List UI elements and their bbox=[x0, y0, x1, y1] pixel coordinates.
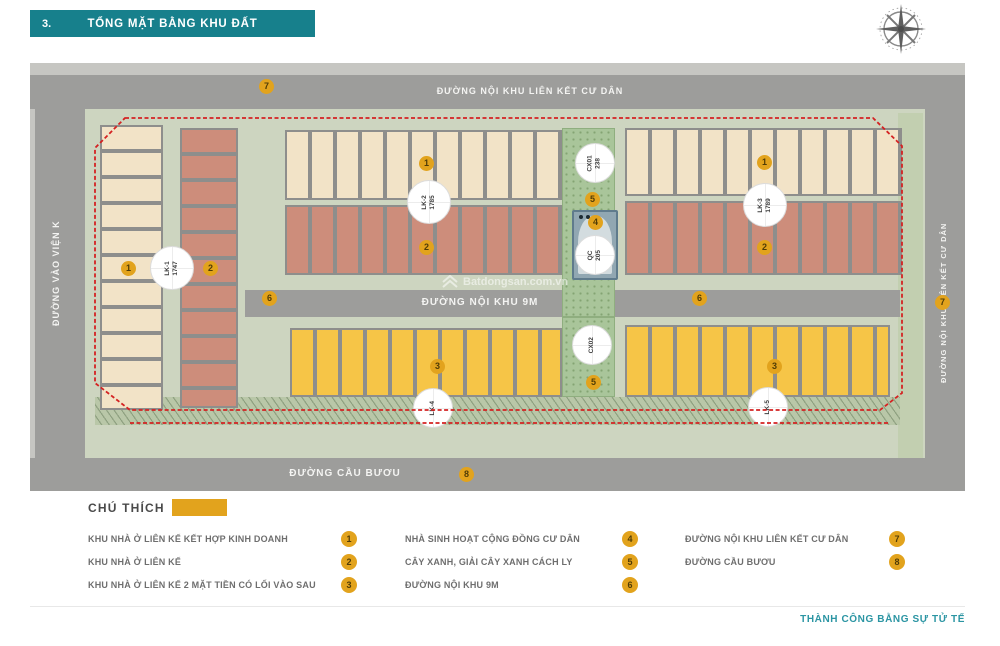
legend-item-label: ĐƯỜNG CẦU BƯƠU bbox=[685, 557, 776, 567]
section-number: 3. bbox=[42, 18, 51, 30]
plot-lk1-area: 1747 bbox=[172, 261, 180, 275]
plot-cx01-code: CX01 bbox=[587, 155, 595, 171]
plot-lk4-code: LK-4 bbox=[429, 401, 437, 415]
road-left-label: ĐƯỜNG VÀO VIỆN K bbox=[51, 193, 61, 353]
plot-cx01-area: 238 bbox=[595, 155, 603, 171]
legend-item-badge: 1 bbox=[341, 531, 357, 547]
legend-item-label: ĐƯỜNG NỘI KHU LIÊN KẾT CƯ DÂN bbox=[685, 534, 848, 544]
marker-4-qc: 4 bbox=[588, 215, 603, 230]
legend-item-badge: 7 bbox=[889, 531, 905, 547]
plot-lk5-code: LK-5 bbox=[764, 400, 772, 414]
marker-7-right: 7 bbox=[935, 295, 950, 310]
legend-item: KHU NHÀ Ở LIÊN KẾ 2 bbox=[88, 554, 357, 569]
marker-2-lk2: 2 bbox=[419, 240, 434, 255]
marker-7-top: 7 bbox=[259, 79, 274, 94]
block-lk5-yellow-lots bbox=[625, 325, 890, 397]
community-house-windows bbox=[579, 215, 583, 219]
plot-circle-lk2: LK-2 1785 bbox=[407, 180, 451, 224]
page-title: TỔNG MẶT BẰNG KHU ĐẤT bbox=[30, 18, 315, 30]
road-top-label: ĐƯỜNG NỘI KHU LIÊN KẾT CƯ DÂN bbox=[410, 86, 650, 96]
marker-2-lk3: 2 bbox=[757, 240, 772, 255]
legend-item-label: KHU NHÀ Ở LIÊN KẾ KẾT HỢP KINH DOANH bbox=[88, 534, 288, 544]
plot-lk3-area: 1789 bbox=[765, 198, 773, 212]
legend-item: KHU NHÀ Ở LIÊN KẾ 2 MẶT TIỀN CÓ LỐI VÀO … bbox=[88, 577, 357, 592]
marker-1-lk1: 1 bbox=[121, 261, 136, 276]
footer-divider bbox=[30, 606, 965, 607]
plot-circle-lk1: LK-1 1747 bbox=[150, 246, 194, 290]
plot-circle-lk3: LK-3 1789 bbox=[743, 183, 787, 227]
legend-column-1: KHU NHÀ Ở LIÊN KẾ KẾT HỢP KINH DOANH 1 K… bbox=[88, 531, 357, 600]
plot-lk1-code: LK-1 bbox=[164, 261, 172, 275]
plot-lk2-area: 1785 bbox=[429, 195, 437, 209]
legend-item-label: NHÀ SINH HOẠT CỘNG ĐỒNG CƯ DÂN bbox=[405, 534, 580, 544]
legend-item-badge: 3 bbox=[341, 577, 357, 593]
compass-rose-icon bbox=[872, 2, 930, 56]
legend-item: CÂY XANH, GIẢI CÂY XANH CÁCH LY 5 bbox=[405, 554, 638, 569]
legend-item-badge: 5 bbox=[622, 554, 638, 570]
road-inner-label: ĐƯỜNG NỘI KHU 9M bbox=[380, 297, 580, 308]
footer-slogan: THÀNH CÔNG BẰNG SỰ TỬ TẾ bbox=[700, 614, 965, 625]
legend-item-label: CÂY XANH, GIẢI CÂY XANH CÁCH LY bbox=[405, 557, 573, 567]
legend-item: ĐƯỜNG CẦU BƯƠU 8 bbox=[685, 554, 905, 569]
legend-item: NHÀ SINH HOẠT CỘNG ĐỒNG CƯ DÂN 4 bbox=[405, 531, 638, 546]
plot-cx02-code: CX02 bbox=[588, 337, 596, 353]
section-header: 3. TỔNG MẶT BẰNG KHU ĐẤT bbox=[30, 10, 315, 37]
plot-lk2-code: LK-2 bbox=[421, 195, 429, 209]
legend-title: CHÚ THÍCH bbox=[88, 501, 165, 515]
legend-item-label: KHU NHÀ Ở LIÊN KẾ 2 MẶT TIỀN CÓ LỐI VÀO … bbox=[88, 580, 316, 590]
marker-3-lk4: 3 bbox=[430, 359, 445, 374]
legend-item-badge: 4 bbox=[622, 531, 638, 547]
marker-1-lk3: 1 bbox=[757, 155, 772, 170]
plot-circle-cx02: CX02 bbox=[572, 325, 612, 365]
marker-2-lk1: 2 bbox=[203, 261, 218, 276]
marker-5-cx01: 5 bbox=[585, 192, 600, 207]
legend-item-label: ĐƯỜNG NỘI KHU 9M bbox=[405, 580, 499, 590]
master-plan-map: ĐƯỜNG NỘI KHU LIÊN KẾT CƯ DÂN ĐƯỜNG VÀO … bbox=[30, 63, 965, 491]
legend-item: ĐƯỜNG NỘI KHU 9M 6 bbox=[405, 577, 638, 592]
legend-column-3: ĐƯỜNG NỘI KHU LIÊN KẾT CƯ DÂN 7 ĐƯỜNG CẦ… bbox=[685, 531, 905, 577]
plot-lk3-code: LK-3 bbox=[757, 198, 765, 212]
marker-6-right: 6 bbox=[692, 291, 707, 306]
marker-8-bottom: 8 bbox=[459, 467, 474, 482]
road-bottom bbox=[30, 458, 965, 491]
marker-6-left: 6 bbox=[262, 291, 277, 306]
watermark: Batdongsan.com.vn bbox=[442, 275, 568, 289]
marker-1-lk2: 1 bbox=[419, 156, 434, 171]
legend-item: KHU NHÀ Ở LIÊN KẾ KẾT HỢP KINH DOANH 1 bbox=[88, 531, 357, 546]
plot-circle-qc: QC 205 bbox=[575, 235, 615, 275]
site-plan-page: 3. TỔNG MẶT BẰNG KHU ĐẤT ĐƯỜNG NỘI KHU L… bbox=[0, 0, 1000, 646]
legend-item: ĐƯỜNG NỘI KHU LIÊN KẾT CƯ DÂN 7 bbox=[685, 531, 905, 546]
plot-circle-lk4: LK-4 bbox=[413, 388, 453, 428]
block-lk4-yellow-lots bbox=[290, 328, 562, 397]
plot-qc-code: QC bbox=[587, 250, 595, 261]
legend-item-badge: 2 bbox=[341, 554, 357, 570]
watermark-logo-icon bbox=[442, 275, 458, 289]
legend-item-badge: 6 bbox=[622, 577, 638, 593]
road-bottom-label: ĐƯỜNG CẦU BƯƠU bbox=[245, 468, 445, 479]
marker-3-lk5: 3 bbox=[767, 359, 782, 374]
legend-item-label: KHU NHÀ Ở LIÊN KẾ bbox=[88, 557, 181, 567]
legend-column-2: NHÀ SINH HOẠT CỘNG ĐỒNG CƯ DÂN 4 CÂY XAN… bbox=[405, 531, 638, 600]
watermark-text: Batdongsan.com.vn bbox=[463, 276, 568, 288]
plot-circle-lk5: LK-5 bbox=[748, 387, 788, 427]
legend-item-badge: 8 bbox=[889, 554, 905, 570]
plot-circle-cx01: CX01 238 bbox=[575, 143, 615, 183]
plot-qc-area: 205 bbox=[595, 250, 603, 261]
marker-5-cx02: 5 bbox=[586, 375, 601, 390]
legend-color-swatch bbox=[172, 499, 227, 516]
